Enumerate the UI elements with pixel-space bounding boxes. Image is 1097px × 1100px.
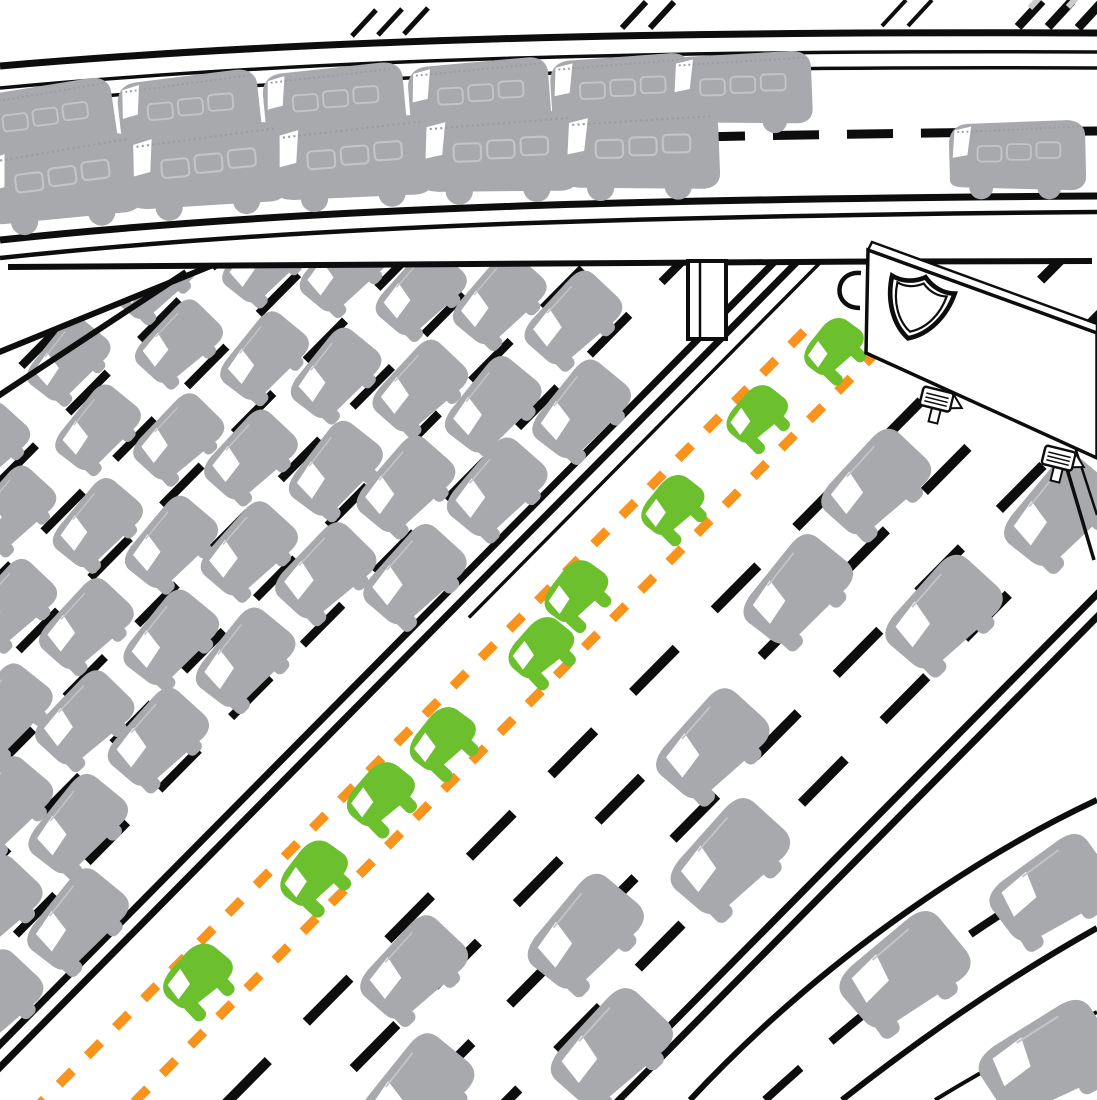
moving-gray-car-shape — [874, 546, 1016, 687]
moving-gray-car — [349, 1025, 487, 1100]
viaduct-van — [563, 109, 721, 202]
congested-gray-car-shape — [437, 430, 559, 552]
congested-gray-car — [0, 459, 66, 565]
viaduct-van-shape — [563, 109, 721, 202]
express-green-car — [338, 753, 430, 845]
express-green-car-shape — [338, 753, 430, 845]
viaduct-pillar — [688, 261, 726, 339]
highway-traffic-illustration — [0, 0, 1097, 1100]
viaduct-van — [949, 120, 1086, 199]
congested-gray-car-shape — [0, 459, 66, 565]
express-green-car-shape — [154, 934, 248, 1028]
express-green-car — [633, 466, 719, 552]
moving-gray-car — [874, 546, 1016, 687]
sign-bracket — [839, 273, 861, 308]
moving-gray-car — [350, 907, 480, 1036]
viaduct-van-shape — [949, 120, 1086, 199]
traffic-scene-canvas — [0, 0, 1097, 1100]
lane-dashed-left-1 — [0, 200, 743, 1100]
moving-gray-car-shape — [350, 907, 480, 1036]
express-green-car — [401, 698, 491, 789]
express-green-car — [154, 934, 248, 1028]
express-green-car-shape — [401, 698, 491, 789]
congested-gray-car — [437, 430, 559, 552]
express-green-car-shape — [633, 466, 719, 552]
express-green-car — [271, 831, 364, 924]
express-green-car — [718, 377, 801, 460]
moving-gray-car-shape — [349, 1025, 487, 1100]
ramp-gray-car-shape — [969, 992, 1097, 1100]
ramp-gray-car — [969, 992, 1097, 1100]
moving-gray-car — [732, 526, 865, 661]
express-green-car-shape — [271, 831, 364, 924]
moving-gray-car-shape — [732, 526, 865, 661]
express-green-car-shape — [718, 377, 801, 460]
